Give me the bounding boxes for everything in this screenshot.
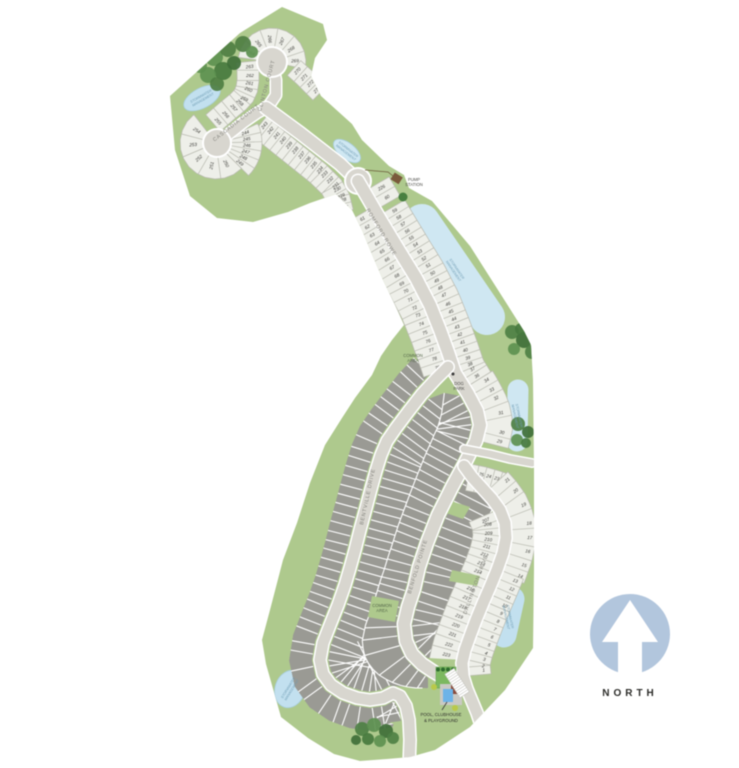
svg-text:& PLAYGROUND: & PLAYGROUND <box>424 718 458 723</box>
svg-text:STATION: STATION <box>405 182 423 187</box>
svg-text:POOL, CLUBHOUSE: POOL, CLUBHOUSE <box>420 712 461 717</box>
svg-text:209: 209 <box>484 531 493 537</box>
svg-text:17: 17 <box>527 535 533 540</box>
svg-text:253: 253 <box>188 142 197 148</box>
svg-text:263: 263 <box>245 64 255 70</box>
svg-text:AREA: AREA <box>376 608 388 613</box>
svg-text:PARK: PARK <box>453 386 464 391</box>
svg-text:NORTH: NORTH <box>602 688 658 699</box>
svg-text:266: 266 <box>267 34 273 44</box>
svg-text:262: 262 <box>245 73 254 78</box>
svg-text:18: 18 <box>526 520 532 525</box>
svg-text:269: 269 <box>290 58 299 63</box>
svg-text:AREA: AREA <box>407 358 419 363</box>
svg-text:208: 208 <box>483 521 493 527</box>
